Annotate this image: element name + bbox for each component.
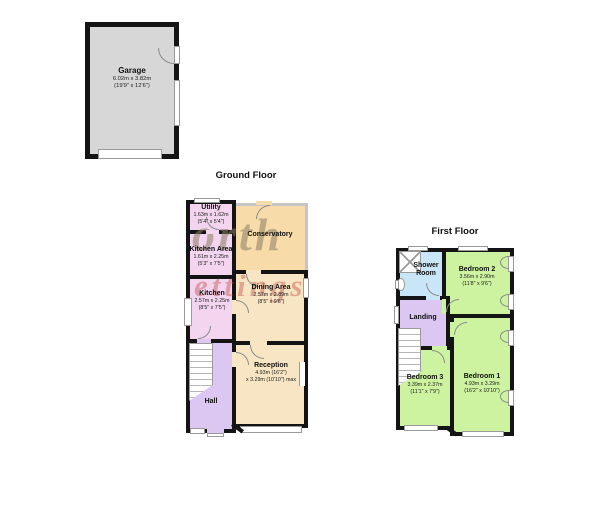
bedroom1-window [462, 431, 504, 437]
bedroom3-label: Bedroom 3 3.39m x 2.37m (11'1" x 7'9") [398, 374, 452, 395]
kitchen-area-dims-ft: (5'3" x 7'5") [186, 261, 236, 267]
utility-window [194, 198, 220, 203]
shower-door-gap [426, 296, 440, 300]
garage-dims-m: 6.02m x 3.82m [87, 76, 177, 83]
kitchen-dims-ft: (8'5" x 7'5") [188, 305, 236, 311]
dining-dims-ft: (8'5" x 9'6") [238, 299, 304, 305]
kitchen-area-label: Kitchen Area 1.61m x 2.25m (5'3" x 7'5") [186, 246, 236, 267]
kitchen-label: Kitchen 2.57m x 2.25m (8'5" x 7'5") [188, 290, 236, 311]
garage-dims-ft: (19'9" x 12'6") [87, 83, 177, 90]
shower-label: Shower Room [406, 262, 446, 279]
front-door-step [207, 433, 224, 437]
reception-label: Reception 4.93m (16'2") x 3.29m (10'10")… [236, 362, 306, 383]
room-garage [85, 22, 179, 159]
kitchen-hall-door-gap [197, 339, 211, 343]
bedroom2-window [458, 246, 488, 251]
utility-door-gap [206, 230, 219, 234]
kitchen-area-dims-m: 1.61m x 2.25m [186, 254, 236, 260]
bedroom3-window [404, 425, 438, 431]
conservatory-label: Conservatory [232, 231, 308, 239]
bedroom1-dims-ft: (16'2" x 10'10") [452, 388, 512, 394]
bedroom2-label: Bedroom 2 3.56m x 2.90m (11'8" x 9'6") [444, 266, 510, 287]
hall-window [190, 428, 205, 434]
ground-floor-title: Ground Floor [183, 170, 309, 181]
utility-name: Utility [186, 204, 236, 212]
first-floor-title: First Floor [396, 226, 514, 237]
bedroom2-name: Bedroom 2 [444, 266, 510, 274]
floorplan-canvas: Garage 6.02m x 3.82m (19'9" x 12'6") Gro… [0, 0, 600, 509]
hall-name: Hall [192, 398, 230, 406]
reception-name: Reception [236, 362, 306, 370]
dining-label: Dining Area 2.57m x 2.89m (8'5" x 9'6") [238, 284, 304, 305]
bedroom2-dims-ft: (11'8" x 9'6") [444, 281, 510, 287]
garage-door-opening [174, 46, 180, 64]
utility-dims-m: 1.63m x 1.62m [186, 212, 236, 218]
bedroom1-label: Bedroom 1 4.93m x 3.29m (16'2" x 10'10") [452, 373, 512, 394]
bedroom1-name: Bedroom 1 [452, 373, 512, 381]
bedroom3-name: Bedroom 3 [398, 374, 452, 382]
landing-label: Landing [398, 314, 448, 322]
shower-name: Shower Room [406, 262, 446, 279]
bedroom3-dims-ft: (11'1" x 7'9") [398, 389, 452, 395]
garage-vehicle-door [98, 149, 162, 159]
utility-dims-ft: (5'4" x 5'4") [186, 219, 236, 225]
landing-name: Landing [398, 314, 448, 322]
kitchen-name: Kitchen [188, 290, 236, 298]
kitchen-dims-m: 2.57m x 2.25m [188, 298, 236, 304]
garage-label: Garage 6.02m x 3.82m (19'9" x 12'6") [87, 66, 177, 90]
conservatory-name: Conservatory [232, 231, 308, 239]
toilet-cistern [395, 280, 399, 289]
utility-label: Utility 1.63m x 1.62m (5'4" x 5'4") [186, 204, 236, 225]
reception-bay-window [240, 426, 302, 433]
reception-dims-line2: x 3.29m (10'10") max [236, 377, 306, 383]
dining-name: Dining Area [238, 284, 304, 292]
hall-label: Hall [192, 398, 230, 406]
garage-name: Garage [87, 66, 177, 76]
kitchen-area-name: Kitchen Area [186, 246, 236, 254]
